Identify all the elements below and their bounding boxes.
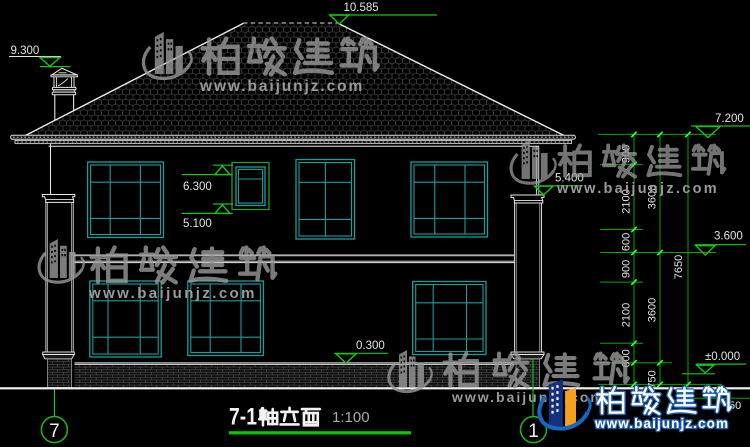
svg-text:7650: 7650 (673, 255, 685, 279)
svg-text:1:100: 1:100 (332, 409, 370, 426)
svg-text:7-1: 7-1 (229, 404, 257, 431)
svg-text:10.585: 10.585 (344, 2, 379, 14)
svg-text:5.100: 5.100 (183, 218, 212, 230)
svg-text:600: 600 (621, 233, 633, 251)
svg-text:3.600: 3.600 (714, 231, 743, 243)
svg-text:www.baijunjz.com: www.baijunjz.com (556, 181, 719, 197)
svg-text:2100: 2100 (621, 303, 633, 327)
svg-text:www.baijunjz.com: www.baijunjz.com (88, 285, 257, 302)
svg-text:www.baijunjz.com: www.baijunjz.com (199, 78, 364, 95)
svg-text:3600: 3600 (647, 298, 659, 322)
svg-text:0.300: 0.300 (356, 340, 385, 352)
svg-text:www.baijunjz.com: www.baijunjz.com (594, 416, 729, 431)
svg-text:www.baijunjz.com: www.baijunjz.com (451, 389, 605, 405)
svg-text:900: 900 (621, 260, 633, 278)
svg-text:7.200: 7.200 (715, 113, 744, 125)
svg-text:9.300: 9.300 (11, 45, 40, 57)
svg-text:±0.000: ±0.000 (705, 351, 740, 363)
svg-text:1: 1 (528, 421, 539, 442)
svg-text:7: 7 (49, 421, 60, 442)
svg-text:6.300: 6.300 (183, 181, 212, 193)
